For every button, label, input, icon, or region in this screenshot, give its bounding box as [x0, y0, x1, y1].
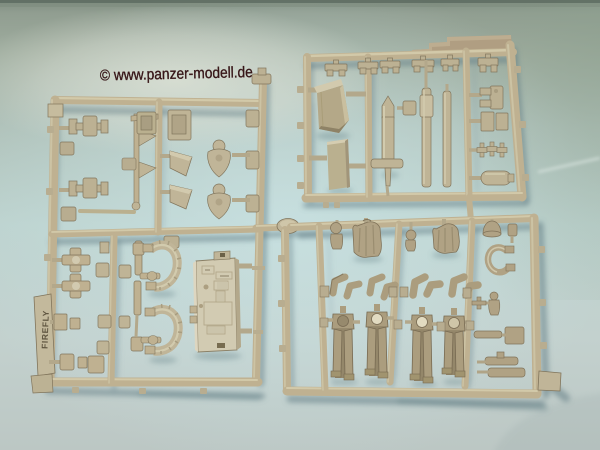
svg-text:FIREFLY: FIREFLY: [40, 310, 51, 349]
svg-text:© www.panzer-modell.de: © www.panzer-modell.de: [100, 64, 253, 84]
